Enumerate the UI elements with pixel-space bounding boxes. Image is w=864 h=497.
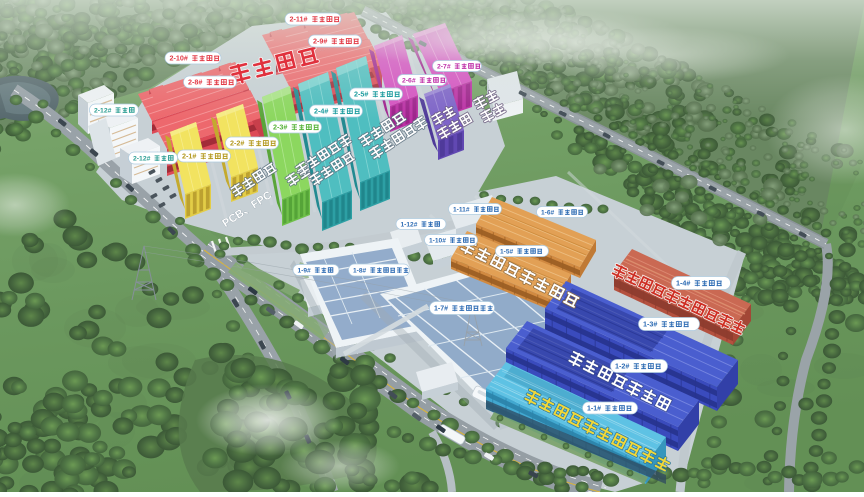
svg-text:1-8#: 1-8# [353, 267, 367, 274]
svg-text:1-12#: 1-12# [401, 221, 418, 228]
svg-text:2-4#: 2-4# [314, 107, 328, 116]
svg-text:1-11#: 1-11# [453, 206, 470, 213]
svg-text:2-10#: 2-10# [170, 54, 188, 63]
svg-text:1-10#: 1-10# [429, 237, 446, 244]
svg-text:2-3#: 2-3# [273, 123, 287, 132]
svg-text:2-9#: 2-9# [313, 37, 327, 46]
svg-text:2-12#: 2-12# [94, 107, 112, 114]
svg-text:1-9#: 1-9# [298, 267, 312, 274]
svg-text:1-6#: 1-6# [541, 209, 555, 216]
svg-text:2-7#: 2-7# [437, 63, 451, 70]
svg-text:2-6#: 2-6# [402, 77, 416, 84]
svg-text:2-1#: 2-1# [182, 152, 196, 161]
svg-text:2-11#: 2-11# [290, 15, 308, 24]
svg-text:1-2#: 1-2# [615, 362, 629, 371]
svg-text:2-12#: 2-12# [133, 155, 151, 162]
svg-text:1-1#: 1-1# [587, 406, 601, 413]
svg-text:1-4#: 1-4# [676, 279, 690, 288]
svg-text:2-5#: 2-5# [354, 90, 368, 99]
svg-text:2-2#: 2-2# [230, 139, 244, 148]
svg-text:1-5#: 1-5# [500, 248, 514, 255]
svg-text:1-7#: 1-7# [434, 306, 448, 313]
svg-text:1-3#: 1-3# [643, 320, 657, 329]
svg-text:2-8#: 2-8# [188, 78, 202, 87]
